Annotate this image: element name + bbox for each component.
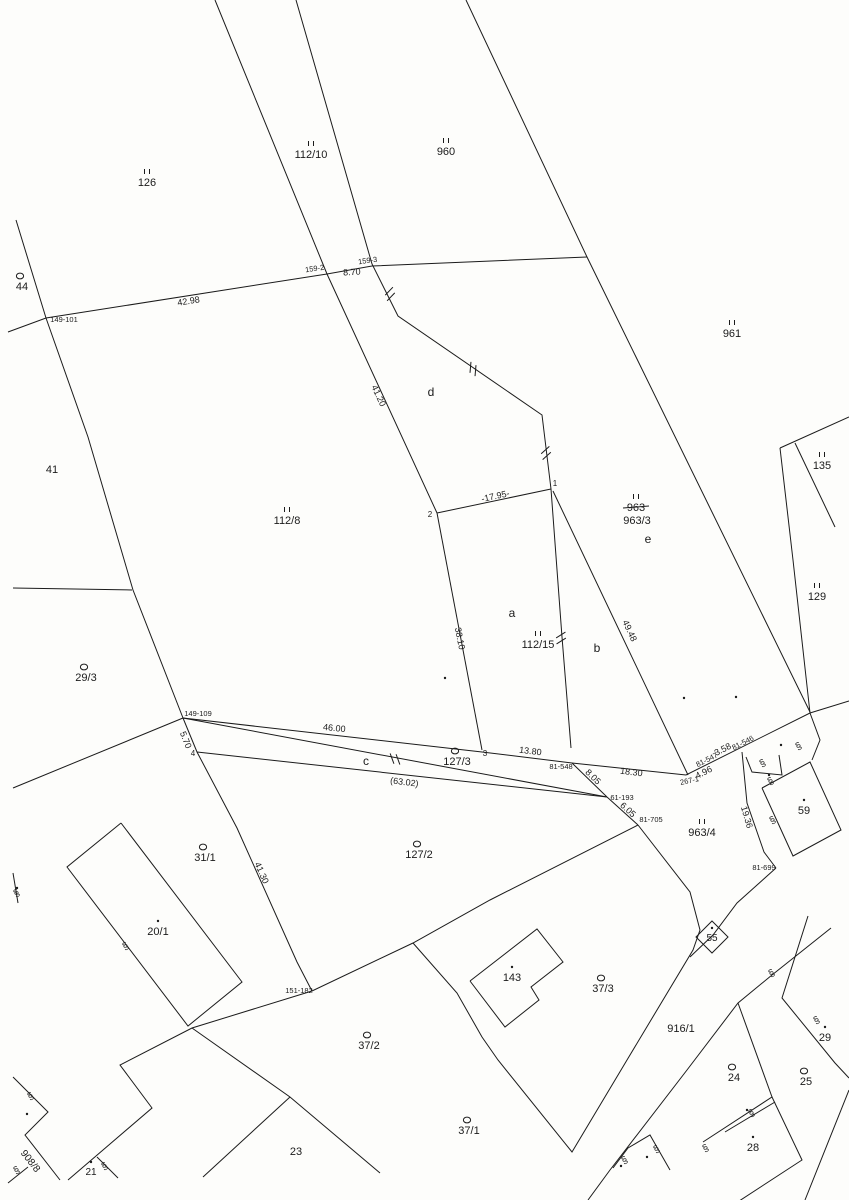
parcel-59-dot-marker <box>803 799 805 801</box>
land-use-mark: § <box>768 815 778 827</box>
m-5-70: 5.70 <box>178 730 194 750</box>
labels-layer: 126112/109609614441112/8963963/313512911… <box>16 138 831 1178</box>
parcel-41: 41 <box>46 464 58 476</box>
survey-dot <box>620 1165 622 1167</box>
edge-135-north <box>780 417 849 448</box>
letter-b: b <box>594 641 601 655</box>
pt-61-193: 61-193 <box>610 793 633 802</box>
parcel-37-2-circle-marker <box>363 1032 370 1038</box>
boundary-tick-mark <box>556 632 565 638</box>
pt-81-705: 81-705 <box>639 815 662 824</box>
parcel-23: 23 <box>290 1146 302 1158</box>
m-42-98: 42.98 <box>177 294 201 307</box>
letter-d: d <box>428 385 435 399</box>
land-use-mark: § <box>26 1091 36 1103</box>
boundary-tick-mark <box>470 362 471 373</box>
strip-right <box>296 0 551 489</box>
survey-dot <box>683 697 685 699</box>
survey-dot <box>780 744 782 746</box>
pt-1: 1 <box>553 479 558 488</box>
parcel-37-2: 37/2 <box>358 1040 379 1052</box>
parcel-59: 59 <box>798 805 810 817</box>
parcel-963-4: 963/4 <box>688 827 716 839</box>
parcel-44-circle-marker <box>16 273 23 279</box>
parcel-143: 143 <box>503 972 521 984</box>
parcel-29: 29 <box>819 1032 831 1044</box>
parcel-21: 21 <box>85 1167 97 1178</box>
edge-junction-south <box>810 713 820 760</box>
m-17-95: -17.95- <box>480 488 510 504</box>
pt-159-2: 159-2 <box>305 263 325 275</box>
parcel-916-1: 916/1 <box>667 1023 695 1035</box>
parcel-29-3-circle-marker <box>80 664 87 670</box>
letter-a: a <box>509 606 516 620</box>
parcel-31-1: 31/1 <box>194 852 215 864</box>
parcel-37-3-circle-marker <box>597 975 604 981</box>
pt-81-699: 81-699 <box>752 863 775 872</box>
parcel-127-2: 127/2 <box>405 849 433 861</box>
boundary-127-2-south <box>68 825 638 1180</box>
pt-159-3: 159-3 <box>358 255 378 267</box>
parcel-25: 25 <box>800 1076 812 1088</box>
pt-81-546: 81-546 <box>730 733 755 752</box>
survey-dot <box>646 1156 648 1158</box>
letter-c: c <box>363 754 369 768</box>
parcel-112-15: 112/15 <box>522 639 555 651</box>
boundary-tick-mark <box>396 754 400 764</box>
survey-dot <box>16 887 18 889</box>
m-41-20: 41.20 <box>369 383 388 408</box>
survey-dot <box>768 774 770 776</box>
edge-129-west <box>780 448 810 713</box>
edge-24-25 <box>738 1003 772 1097</box>
land-use-mark: § <box>12 888 22 900</box>
land-use-mark: § <box>758 758 768 770</box>
letter-e: e <box>645 532 652 546</box>
survey-dot <box>735 696 737 698</box>
edge-23-west <box>203 1097 290 1177</box>
building-20-1 <box>67 823 242 1026</box>
parcel-24: 24 <box>728 1072 740 1084</box>
survey-symbols-layer: §§§§§§§§§§§§§§§ <box>12 287 822 1177</box>
edge-135-129 <box>795 443 835 527</box>
parcel-37-3: 37/3 <box>592 983 613 995</box>
parcel-135: 135 <box>813 460 831 472</box>
parcel-112-8: 112/8 <box>274 515 301 527</box>
parcel-37-1-circle-marker <box>463 1117 470 1123</box>
parcel-31-1-circle-marker <box>199 844 206 850</box>
cadastral-map-svg: §§§§§§§§§§§§§§§ 126112/109609614441112/8… <box>0 0 849 1200</box>
m-13-80: 13.80 <box>519 745 543 758</box>
strip-left-41-20 <box>215 0 437 513</box>
pt-4: 4 <box>191 749 196 758</box>
land-use-mark: § <box>121 941 131 953</box>
edge-29-3-south <box>13 588 132 590</box>
land-use-mark: § <box>100 1161 110 1173</box>
parcel-963-old: 963 <box>627 502 645 514</box>
boundary-tick-mark <box>390 753 394 763</box>
boundary-lines-layer <box>8 0 849 1200</box>
parcel-112-10: 112/10 <box>295 149 328 161</box>
parcel-20-1: 20/1 <box>147 926 168 938</box>
edge-112-15-east <box>551 489 571 748</box>
m-6-05: 6.05 <box>618 800 638 819</box>
edge-49-48 <box>553 491 688 775</box>
m-8-70: 8.70 <box>343 267 361 278</box>
edge-31-1-north <box>13 718 183 788</box>
parcel-960: 960 <box>437 146 455 158</box>
parcel-963-3: 963/3 <box>623 515 651 527</box>
boundary-961 <box>466 0 810 712</box>
survey-dot <box>746 1109 748 1111</box>
boundary-42-98 <box>8 257 587 332</box>
parcel-21-dot-marker <box>90 1161 92 1163</box>
land-use-mark: § <box>652 1144 662 1156</box>
parcel-55: 55 <box>706 933 718 944</box>
boundary-tick-mark <box>541 446 549 453</box>
survey-dot <box>444 677 446 679</box>
parcel-bottom-small <box>613 1135 670 1170</box>
parcel-25-circle-marker <box>800 1068 807 1074</box>
parcel-127-3: 127/3 <box>443 756 471 768</box>
m-19-36: 19.36 <box>739 805 755 829</box>
land-use-mark: § <box>812 1015 822 1027</box>
parcel-55-dot-marker <box>711 927 713 929</box>
m-41-30: 41.30 <box>253 860 271 885</box>
parcel-37-1: 37/1 <box>458 1125 479 1137</box>
survey-dot <box>26 1113 28 1115</box>
parcel-127-2-circle-marker <box>413 841 420 847</box>
parcel-29-dot-marker <box>824 1026 826 1028</box>
pt-149-109: 149-109 <box>184 709 212 718</box>
m-38-10: 38.10 <box>453 626 467 650</box>
pt-2: 2 <box>428 510 433 519</box>
parcel-28: 28 <box>747 1142 759 1154</box>
parcel-24-circle-marker <box>728 1064 735 1070</box>
m-18-30: 18.30 <box>620 766 644 779</box>
parcel-44: 44 <box>16 281 28 293</box>
parcel-961: 961 <box>723 328 741 340</box>
boundary-44-west <box>16 220 183 718</box>
boundary-tick-mark <box>385 287 393 295</box>
m-46-00: 46.00 <box>323 722 346 734</box>
parcel-129: 129 <box>808 591 826 603</box>
m-8-05: 8.05 <box>583 767 603 786</box>
land-use-mark: § <box>794 741 804 753</box>
parcel-28-dot-marker <box>752 1136 754 1138</box>
boundary-916-west <box>413 825 700 1152</box>
boundary-tick-mark <box>475 365 476 376</box>
parcel-29-3: 29/3 <box>75 672 96 684</box>
m-63-02: (63.02) <box>390 775 420 788</box>
pt-149-101: 149-101 <box>50 315 78 324</box>
cadastral-map-sheet: §§§§§§§§§§§§§§§ 126112/109609614441112/8… <box>0 0 849 1200</box>
boundary-tick-mark <box>557 638 566 644</box>
parcel-126: 126 <box>138 177 156 189</box>
road-se-east-2 <box>805 1090 849 1200</box>
land-use-mark: § <box>701 1143 711 1155</box>
parcel-143-dot-marker <box>511 966 513 968</box>
pt-151-182: 151-182 <box>285 986 313 995</box>
parcel-20-1-dot-marker <box>157 920 159 922</box>
pt-3: 3 <box>483 749 488 758</box>
land-use-mark: § <box>12 1165 22 1177</box>
pt-81-548: 81-548 <box>549 762 572 771</box>
